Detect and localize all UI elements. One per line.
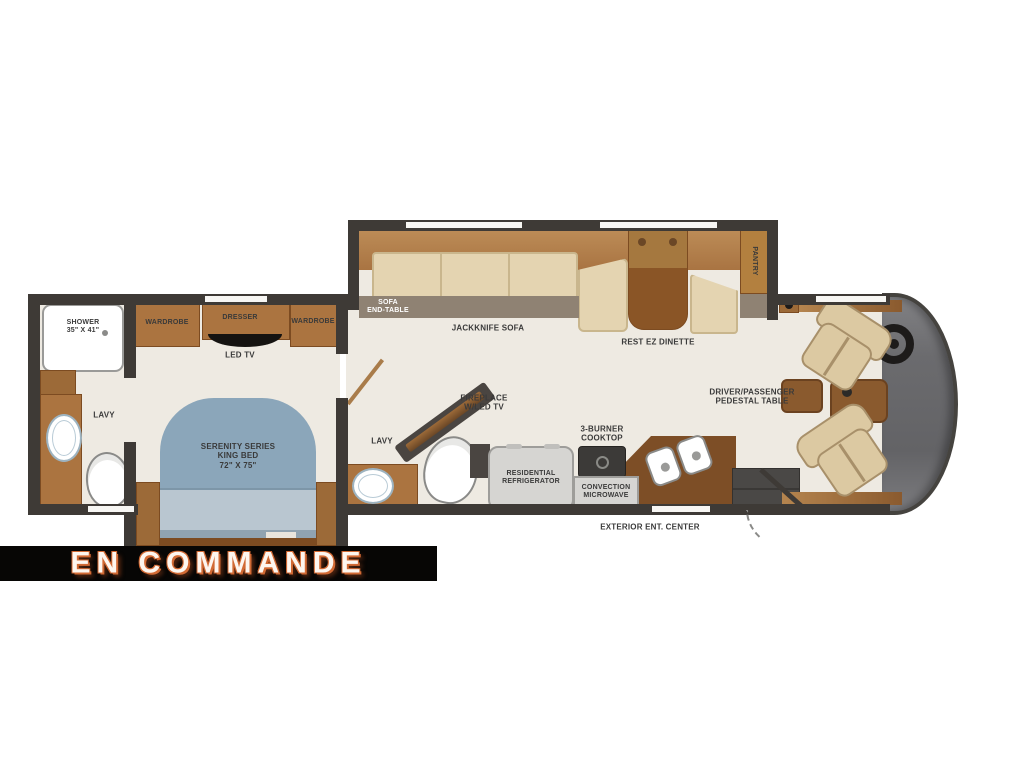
label-lavy-rear: LAVY (93, 410, 115, 419)
slideout-window (600, 222, 717, 228)
dinette-table-dot (669, 238, 677, 246)
slideout-right-wall (767, 220, 778, 320)
pantry-base (740, 294, 768, 318)
slideout-window (406, 222, 522, 228)
label-pantry: PANTRY (750, 246, 758, 275)
label-sofa-end-table: SOFA END-TABLE (367, 299, 409, 316)
label-wardrobe-right: WARDROBE (291, 318, 334, 326)
status-banner: EN COMMANDE (0, 546, 437, 581)
bedroom-right-wall-lower (336, 398, 348, 546)
label-jackknife-sofa: JACKKNIFE SOFA (452, 323, 525, 332)
rear-wall (28, 296, 40, 510)
sink-drain-icon (660, 461, 672, 473)
nightstand-left (136, 482, 160, 546)
sofa-cushion-divider (508, 254, 510, 302)
label-led-tv: LED TV (225, 350, 255, 359)
label-shower: SHOWER 35" X 41" (67, 319, 100, 336)
bedroom-top-wall (28, 294, 350, 305)
cooktop-burner-icon (596, 456, 609, 469)
bottom-window-main (652, 506, 710, 512)
label-wardrobe-left: WARDROBE (145, 319, 188, 327)
slideout-left-wall (348, 220, 359, 310)
sofa-cushion-divider (440, 254, 442, 302)
bedroom-window (205, 296, 267, 302)
rear-bath-cabinet (40, 370, 76, 396)
cab-window (816, 296, 886, 302)
bath-divider-wall (124, 442, 136, 546)
rv-floorplan-image: SHOWER 35" X 41" WARDROBE DRESSER WARDRO… (0, 0, 1024, 768)
sink-drain-icon (691, 450, 703, 462)
sofa-end-cushion (578, 258, 628, 332)
label-fireplace: FIREPLACE W/LED TV (460, 394, 507, 413)
mid-bath-sink (352, 468, 394, 504)
entry-door-swing-arc (746, 510, 804, 554)
king-bed-foot (160, 488, 316, 532)
label-microwave: CONVECTION MICROWAVE (582, 484, 631, 501)
status-banner-text: EN COMMANDE (71, 546, 367, 580)
nightstand-right (316, 482, 338, 546)
label-exterior-ent-center: EXTERIOR ENT. CENTER (600, 522, 700, 531)
label-driver-passenger-table: DRIVER/PASSENGER PEDESTAL TABLE (709, 388, 794, 407)
dinette-table-dot (638, 238, 646, 246)
bottom-window-rear (88, 506, 134, 512)
label-dresser: DRESSER (222, 314, 257, 322)
entry-step-line (733, 488, 799, 490)
bedroom-right-wall-upper (336, 294, 348, 354)
label-cooktop: 3-BURNER COOKTOP (581, 425, 624, 444)
label-rest-ez-dinette: REST EZ DINETTE (621, 337, 694, 346)
dinette-table (628, 230, 688, 330)
label-king-bed: SERENITY SERIES KING BED 72" X 75" (201, 442, 275, 470)
shower (42, 304, 124, 372)
cooktop (578, 446, 626, 478)
label-refrigerator: RESIDENTIAL REFRIGERATOR (502, 470, 560, 487)
label-lavy-mid: LAVY (371, 436, 393, 445)
fireplace-wall-stub (470, 444, 490, 478)
rear-bath-sink (46, 414, 82, 462)
fridge-handle (506, 444, 522, 449)
shower-drain-icon (102, 330, 108, 336)
fridge-handle (544, 444, 560, 449)
shower-side-wall (124, 294, 136, 378)
bottom-wall-main (348, 504, 890, 515)
